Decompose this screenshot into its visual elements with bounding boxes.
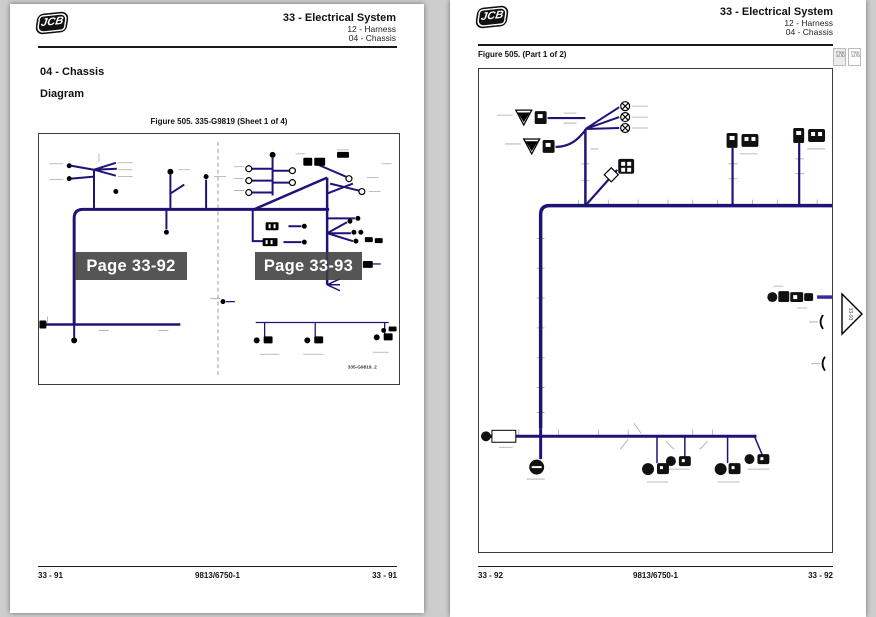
harness-wires (44, 158, 388, 338)
footer-doc-ref: 9813/6750-1 (195, 571, 240, 580)
jcb-logo-text: JCB (476, 7, 507, 28)
header-chapter: 33 - Electrical System (583, 6, 833, 19)
bracket-icon (823, 357, 825, 371)
harness-wires (487, 107, 832, 463)
footer-doc-ref: 9813/6750-1 (633, 571, 678, 580)
mini-page-link-33-93[interactable]: Page 33-93 (848, 48, 861, 66)
figure-caption: Figure 505. (Part 1 of 2) (478, 50, 566, 59)
figure-frame: Page 33-92 Page 33-93 335-G9819_2 (38, 133, 400, 385)
manual-page-33-92: JCB 33 - Electrical System 12 - Harness … (450, 0, 866, 617)
header-subsection: 04 - Chassis (583, 28, 833, 38)
mini-page-link-33-92[interactable]: Page 33-92 (833, 48, 846, 66)
continuation-arrow-icon: 33-93 (840, 292, 864, 336)
jcb-logo-text: JCB (36, 13, 67, 34)
footer-page-number-right: 33 - 92 (808, 571, 833, 580)
figure-frame (478, 68, 833, 553)
footer-page-number-right: 33 - 91 (372, 571, 397, 580)
header-rule (478, 44, 833, 46)
section-title: 04 - Chassis (40, 66, 104, 78)
bracket-icon (821, 315, 823, 329)
ring-terminal-icon (621, 102, 630, 133)
page-link-33-92[interactable]: Page 33-92 (75, 252, 187, 280)
footer-page-number-left: 33 - 91 (38, 571, 63, 580)
page-footer: 33 - 92 9813/6750-1 33 - 92 (478, 566, 833, 580)
figure-caption: Figure 505. 335-G9819 (Sheet 1 of 4) (38, 117, 400, 126)
drawing-reference: 335-G9819_2 (348, 365, 377, 370)
page-header: 33 - Electrical System 12 - Harness 04 -… (583, 6, 833, 38)
page-header: 33 - Electrical System 12 - Harness 04 -… (146, 12, 396, 44)
subsection-title: Diagram (40, 88, 84, 100)
mini-link-2-line2: 33-93 (851, 55, 860, 59)
header-rule (38, 46, 397, 48)
header-chapter: 33 - Electrical System (146, 12, 396, 25)
connector-symbols (481, 102, 825, 475)
pdf-viewer-canvas: JCB 33 - Electrical System 12 - Harness … (0, 0, 876, 617)
manual-page-33-91: JCB 33 - Electrical System 12 - Harness … (10, 4, 424, 613)
page-footer: 33 - 91 9813/6750-1 33 - 91 (38, 566, 397, 580)
header-subsection: 04 - Chassis (146, 34, 396, 44)
mini-link-1-line2: 33-92 (836, 55, 845, 59)
jcb-logo: JCB (36, 12, 70, 36)
page-link-33-93[interactable]: Page 33-93 (255, 252, 362, 280)
continuation-arrow[interactable]: 33-93 (840, 292, 864, 336)
jcb-logo: JCB (476, 6, 510, 30)
page-link-33-92-label: Page 33-92 (86, 257, 175, 276)
continuation-arrow-label: 33-93 (847, 308, 853, 321)
footer-page-number-left: 33 - 92 (478, 571, 503, 580)
wiring-diagram-part1 (479, 69, 832, 552)
page-link-33-93-label: Page 33-93 (264, 257, 353, 276)
